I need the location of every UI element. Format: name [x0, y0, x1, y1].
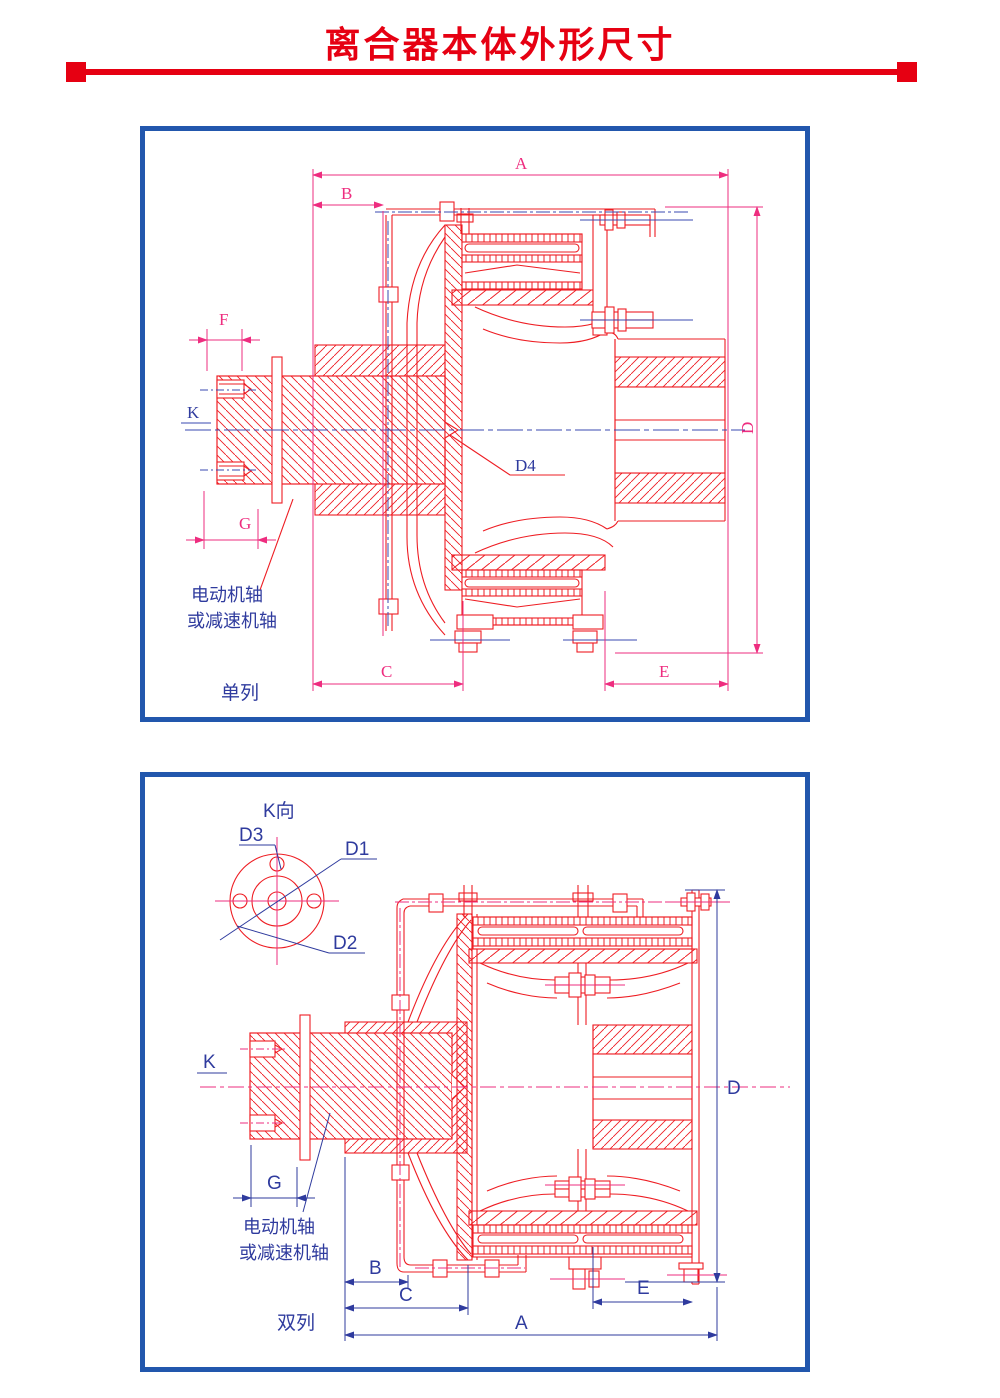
dim-label-d: D	[738, 422, 757, 434]
shaft-note-leader	[260, 499, 293, 590]
dim-label-d1: D1	[345, 839, 369, 860]
dim-label-d4: D4	[515, 456, 536, 475]
dim-label-b: B	[341, 184, 352, 203]
caption-single-row: 单列	[221, 682, 259, 704]
title-divider	[66, 61, 917, 83]
shaft-note-line1: 电动机轴	[191, 585, 263, 605]
k-view-crosshair	[215, 837, 339, 965]
divider-bar	[86, 69, 897, 75]
axis-label-k: K	[187, 403, 200, 422]
d4-leader	[450, 435, 565, 475]
single-row-drawing: A B C E F G D K D4 电动机轴 或减速机轴 单列	[145, 131, 805, 717]
shaft-note-line1: 电动机轴	[243, 1217, 315, 1237]
k-view-title: K向	[263, 800, 295, 822]
dim-label-d3: D3	[239, 825, 263, 846]
dim-label-f: F	[219, 310, 228, 329]
shaft-note-line2: 或减速机轴	[239, 1243, 329, 1263]
divider-right-cap	[897, 62, 917, 82]
drawing-sheet: 离合器本体外形尺寸	[0, 0, 1000, 1398]
axis-label-k: K	[203, 1052, 216, 1073]
dim-label-g: G	[267, 1173, 282, 1194]
single-row-panel: A B C E F G D K D4 电动机轴 或减速机轴 单列	[140, 126, 810, 722]
shaft-note-line2: 或减速机轴	[187, 611, 277, 631]
dim-label-e: E	[659, 662, 669, 681]
dim-label-d2: D2	[333, 933, 357, 954]
double-row-drawing: K向 D3 D1 D2 K G B C E A D 电动机轴 或减速机轴 双列	[145, 777, 805, 1367]
dim-label-e: E	[637, 1278, 650, 1299]
clutch-cross-section-single	[217, 202, 725, 652]
dim-label-b: B	[369, 1258, 382, 1279]
divider-left-cap	[66, 62, 86, 82]
dim-label-d: D	[727, 1078, 741, 1099]
dim-label-c: C	[381, 662, 392, 681]
dim-label-a: A	[515, 154, 528, 173]
caption-double-row: 双列	[277, 1312, 315, 1334]
dim-label-c: C	[399, 1285, 413, 1306]
dim-label-g: G	[239, 514, 251, 533]
dim-label-a: A	[515, 1313, 528, 1334]
double-row-panel: K向 D3 D1 D2 K G B C E A D 电动机轴 或减速机轴 双列	[140, 772, 810, 1372]
